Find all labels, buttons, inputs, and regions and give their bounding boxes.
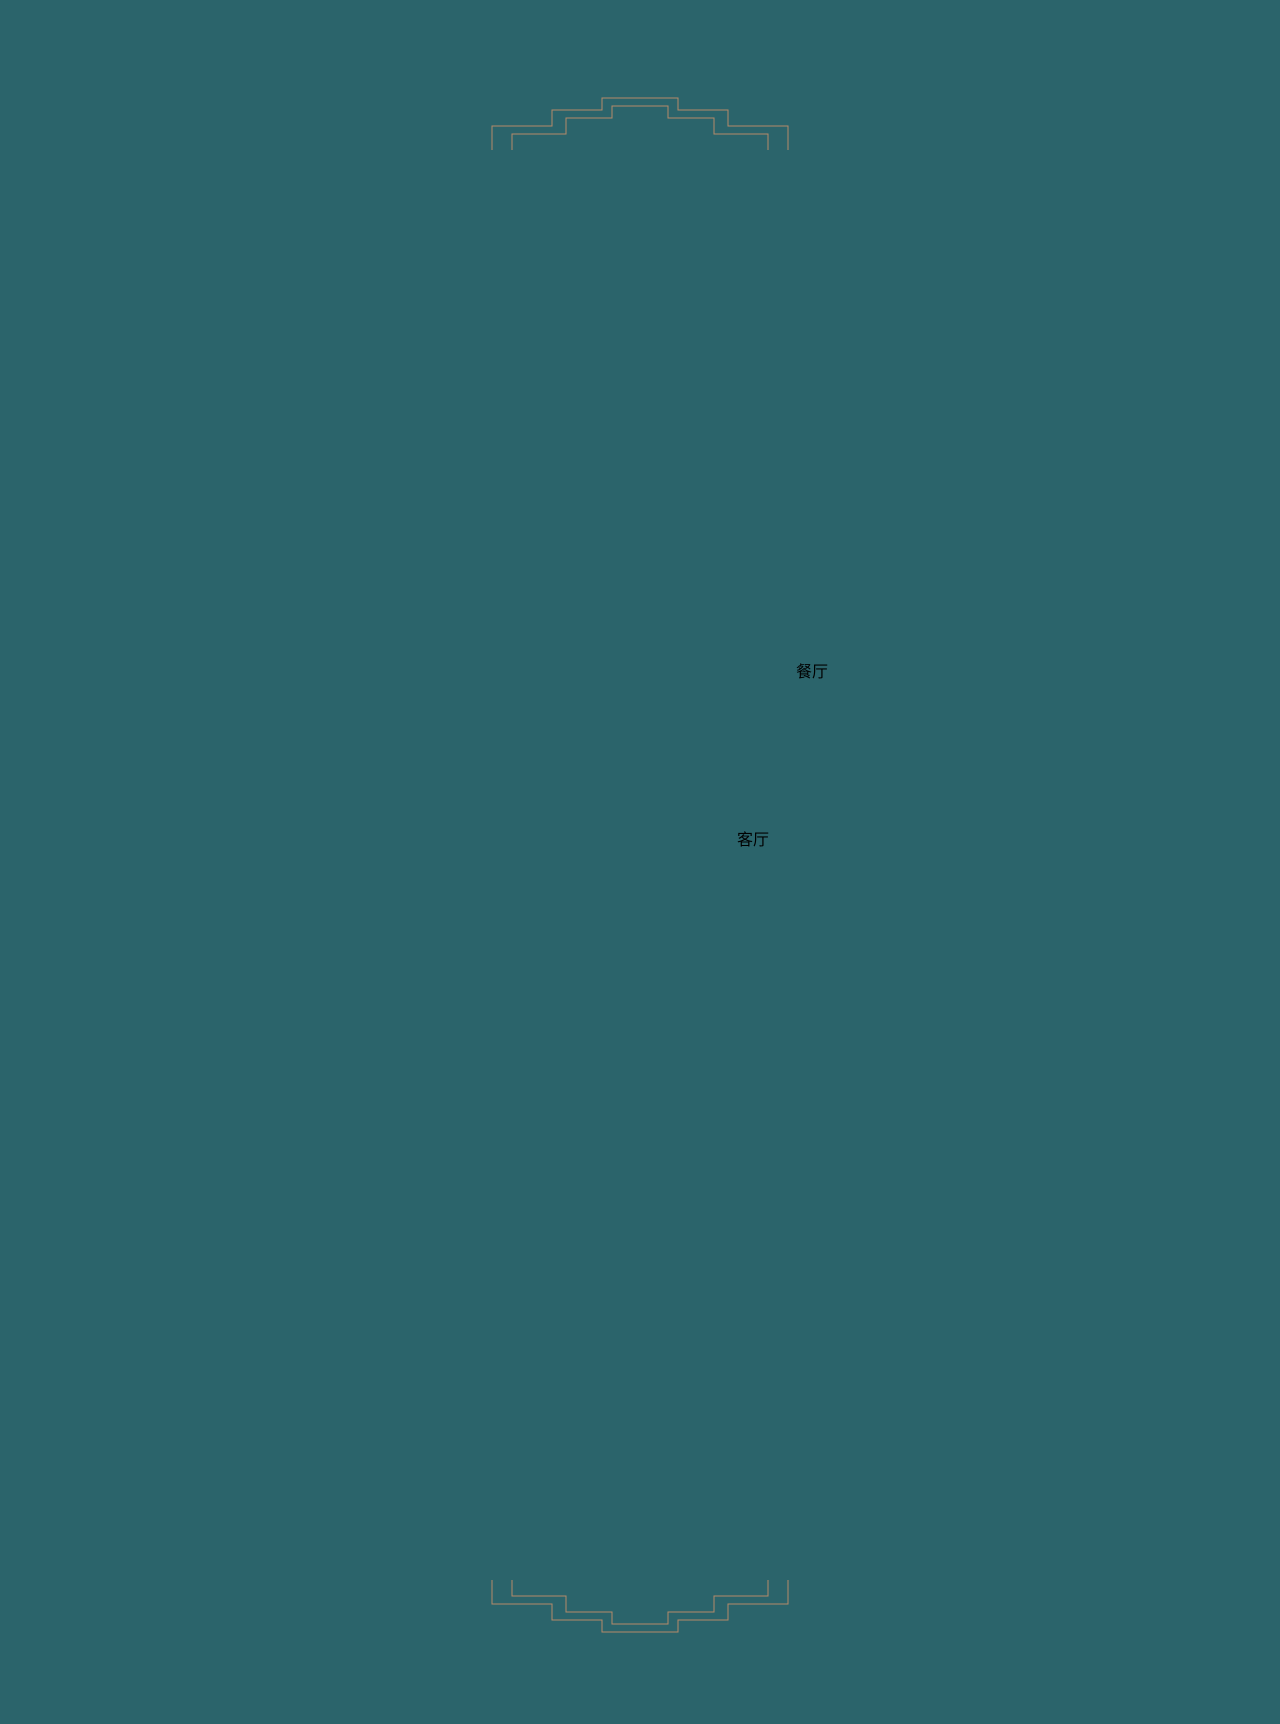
poster: 世联 worldunionji.com 集 瀚清 华府 19/21号楼户型品鉴 … [0,0,1280,1724]
gate-ornament-top [490,94,790,152]
gate-ornament-bottom [490,1578,790,1636]
background-pattern [0,0,1280,1724]
room-label-living: 客厅 [737,826,769,850]
room-label-dining: 餐厅 [796,658,828,682]
